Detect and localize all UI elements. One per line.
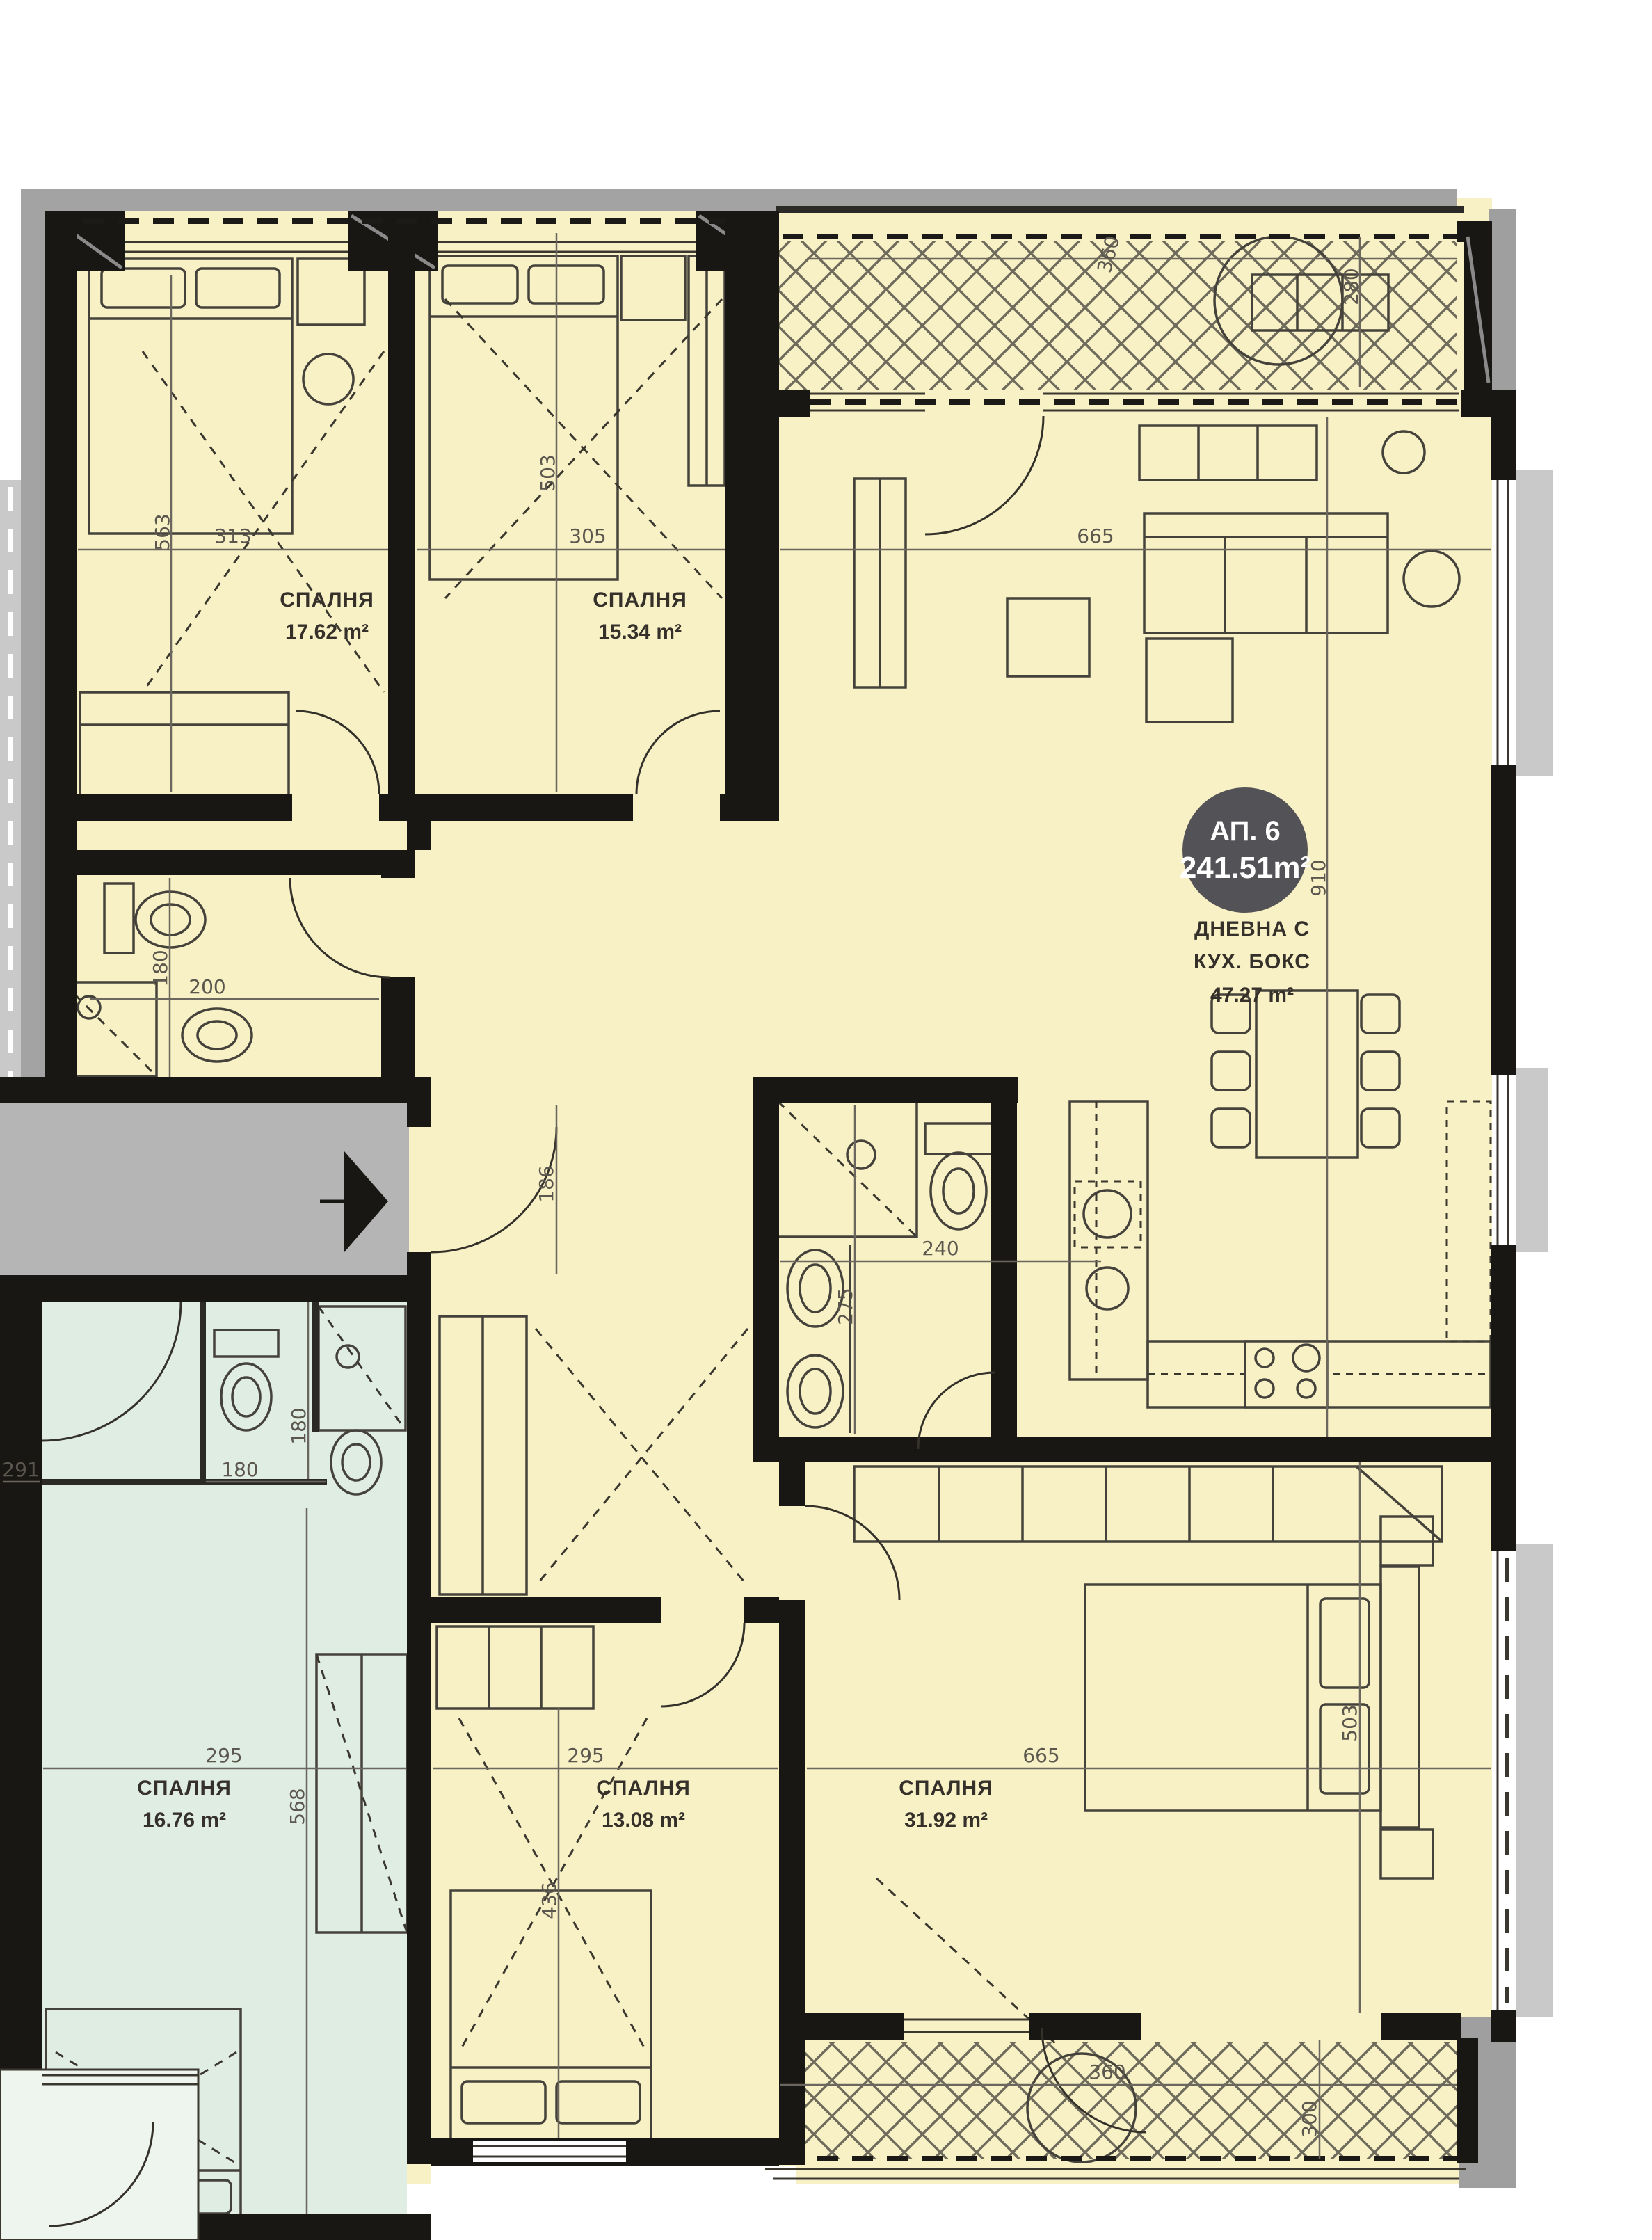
window-sill: [1516, 1068, 1548, 1252]
room-area-bedroom-15: 15.34 m²: [598, 621, 682, 643]
dim-label: 240: [922, 1237, 959, 1260]
room-label-bedroom-17: СПАЛНЯ: [280, 589, 374, 611]
window-sill: [1516, 1544, 1553, 2017]
dim-label: 360: [1089, 2061, 1125, 2083]
room-label-living-2: КУХ. БОКС: [1194, 950, 1310, 973]
dim-label: 313: [214, 525, 251, 547]
floor-plan: 313 563 305 503 665 360 280 910 186 180 …: [0, 0, 1652, 2240]
dim-label: 503: [1338, 1704, 1361, 1741]
window-sill: [1516, 470, 1553, 776]
badge-unit: АП. 6: [1210, 816, 1281, 847]
dim-label: 568: [286, 1788, 309, 1825]
room-area-bedroom-31: 31.92 m²: [904, 1809, 988, 1832]
dim-label: 295: [205, 1744, 242, 1767]
dim-label: 180: [221, 1458, 258, 1481]
room-label-bedroom-31: СПАЛНЯ: [899, 1777, 993, 1800]
room-area-bedroom-13: 13.08 m²: [602, 1809, 685, 1832]
room-area-bedroom-16: 16.76 m²: [143, 1809, 226, 1832]
room-label-bedroom-15: СПАЛНЯ: [593, 589, 687, 611]
dim-label: 300: [1298, 2100, 1321, 2137]
teal-balcony: [0, 2070, 198, 2240]
room-label-bedroom-16: СПАЛНЯ: [137, 1777, 232, 1800]
badge-area: 241.51m²: [1180, 851, 1310, 885]
floor-plan-svg: 313 563 305 503 665 360 280 910 186 180 …: [0, 0, 1652, 2240]
room-label-bedroom-13: СПАЛНЯ: [596, 1777, 691, 1800]
dim-label: 186: [535, 1165, 558, 1202]
dim-label: 503: [536, 454, 559, 491]
dim-label: 200: [189, 975, 225, 998]
room-area-living: 47.27 m²: [1210, 984, 1294, 1007]
dim-label: 180: [287, 1407, 310, 1444]
dim-label: 291: [2, 1458, 39, 1481]
room-label-living-1: ДНЕВНА С: [1194, 918, 1310, 941]
dim-label: 180: [149, 950, 172, 986]
room-area-bedroom-17: 17.62 m²: [285, 621, 369, 643]
dim-label: 305: [569, 525, 606, 547]
dim-label: 563: [151, 513, 174, 550]
bottom-balcony-hatch: [779, 2042, 1457, 2159]
dim-label: 436: [538, 1882, 561, 1919]
dim-label: 665: [1023, 1744, 1059, 1767]
dim-label: 275: [834, 1288, 857, 1325]
dim-label: 665: [1077, 525, 1114, 547]
dim-label: 295: [567, 1744, 604, 1767]
dim-label: 280: [1340, 268, 1363, 305]
